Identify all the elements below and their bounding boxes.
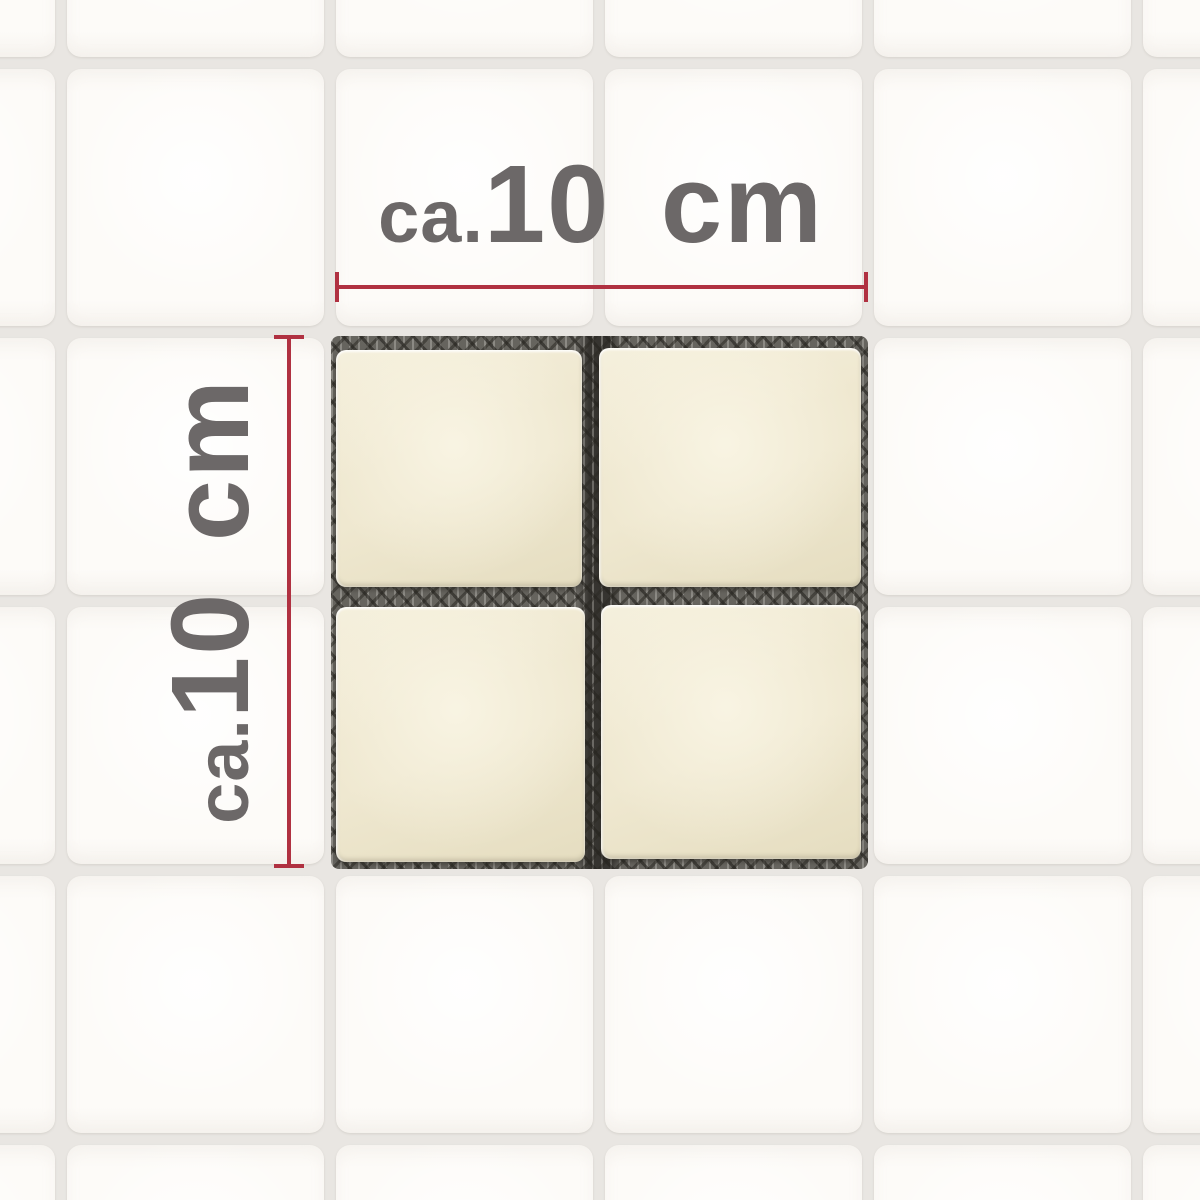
white-tile: [874, 876, 1131, 1133]
measure-tick-bottom: [274, 864, 304, 868]
white-tile: [0, 0, 55, 57]
white-tile: [0, 338, 55, 595]
white-tile: [874, 69, 1131, 326]
horizontal-measure-line: [337, 285, 866, 289]
white-tile: [874, 0, 1131, 57]
measure-tick-top: [274, 335, 304, 339]
white-tile: [1143, 338, 1200, 595]
mosaic-tile: [336, 350, 582, 587]
white-tile: [67, 876, 324, 1133]
white-tile: [0, 876, 55, 1133]
white-tile: [0, 1145, 55, 1200]
white-tile: [605, 1145, 862, 1200]
mosaic-tile: [599, 348, 861, 587]
white-tile: [67, 0, 324, 57]
white-tile: [1143, 0, 1200, 57]
horizontal-measure-prefix: ca.: [378, 175, 484, 258]
tile-product-photo: ca.10 cm ca.10 cm: [0, 0, 1200, 1200]
horizontal-measure-label: ca.10 cm: [378, 150, 824, 260]
white-tile: [605, 0, 862, 57]
vertical-measure-value: 10 cm: [149, 378, 272, 718]
white-tile: [1143, 607, 1200, 864]
white-tile: [0, 69, 55, 326]
vertical-measure-label: ca.10 cm: [156, 378, 266, 824]
white-tile: [67, 69, 324, 326]
white-tile: [1143, 69, 1200, 326]
measure-tick-left: [335, 272, 339, 302]
white-tile: [605, 876, 862, 1133]
vertical-measure-prefix: ca.: [181, 718, 264, 824]
mosaic-tile: [601, 605, 861, 859]
white-tile: [336, 876, 593, 1133]
white-tile: [1143, 1145, 1200, 1200]
white-tile: [874, 607, 1131, 864]
white-tile: [874, 1145, 1131, 1200]
mosaic-tile: [336, 607, 585, 862]
white-tile: [874, 338, 1131, 595]
white-tile: [0, 607, 55, 864]
white-tile: [67, 1145, 324, 1200]
white-tile: [1143, 876, 1200, 1133]
horizontal-measure-value: 10 cm: [484, 143, 824, 266]
measure-tick-right: [864, 272, 868, 302]
white-tile: [336, 1145, 593, 1200]
vertical-measure-line: [287, 337, 291, 866]
white-tile: [336, 0, 593, 57]
